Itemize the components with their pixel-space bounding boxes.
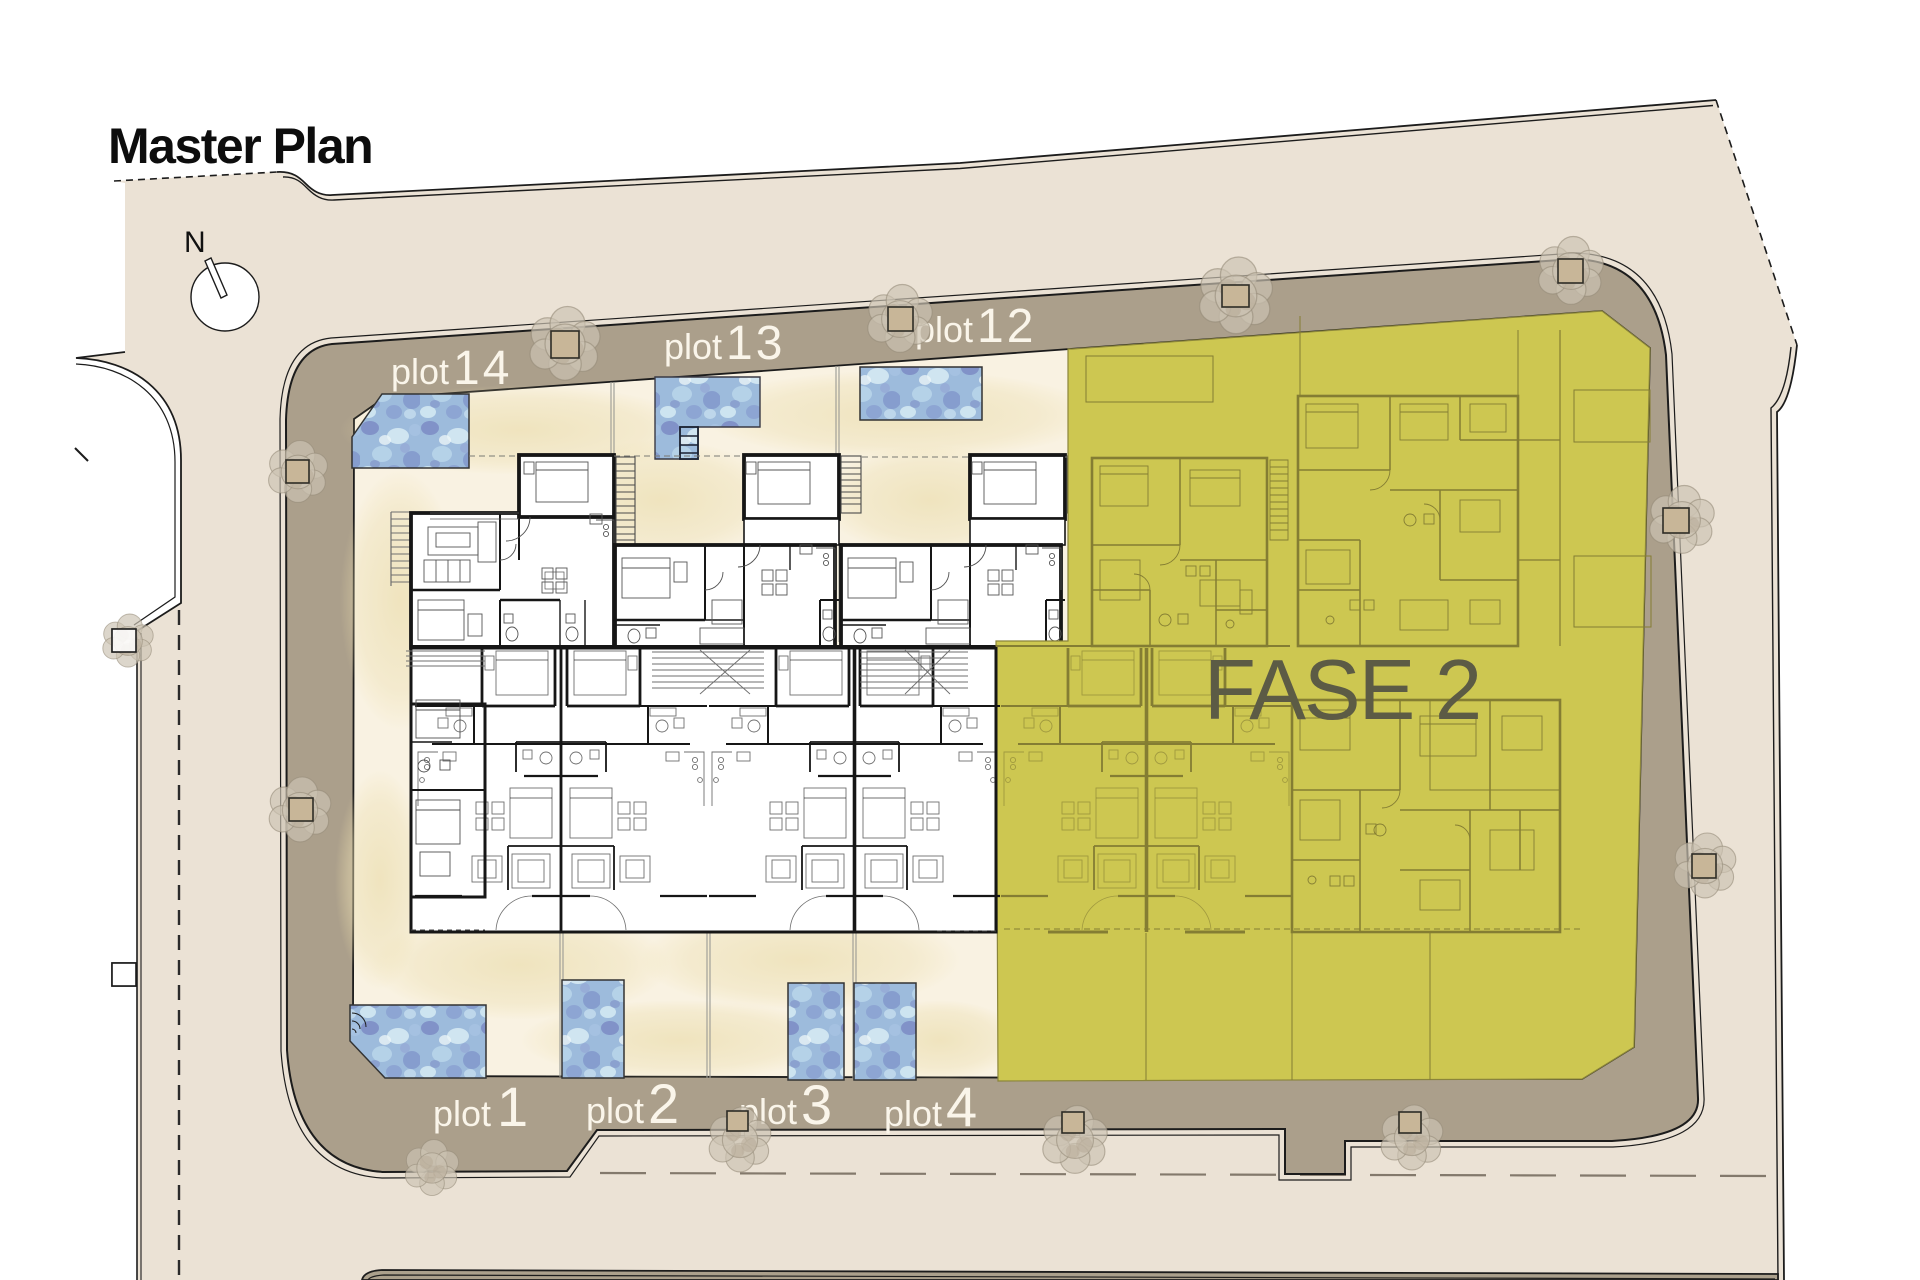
- svg-text:Master Plan: Master Plan: [108, 118, 372, 174]
- svg-text:14: 14: [453, 342, 512, 395]
- svg-text:2: 2: [648, 1072, 679, 1135]
- svg-text:plot: plot: [433, 1093, 491, 1134]
- svg-text:3: 3: [801, 1073, 832, 1136]
- svg-text:FASE 2: FASE 2: [1204, 643, 1480, 738]
- svg-text:4: 4: [946, 1075, 977, 1138]
- svg-text:N: N: [184, 226, 206, 259]
- svg-text:plot: plot: [391, 351, 449, 392]
- svg-text:13: 13: [726, 317, 785, 370]
- svg-text:1: 1: [497, 1075, 528, 1138]
- svg-text:plot: plot: [586, 1090, 644, 1131]
- svg-text:plot: plot: [884, 1093, 942, 1134]
- svg-text:plot: plot: [664, 326, 722, 367]
- svg-text:12: 12: [977, 300, 1036, 353]
